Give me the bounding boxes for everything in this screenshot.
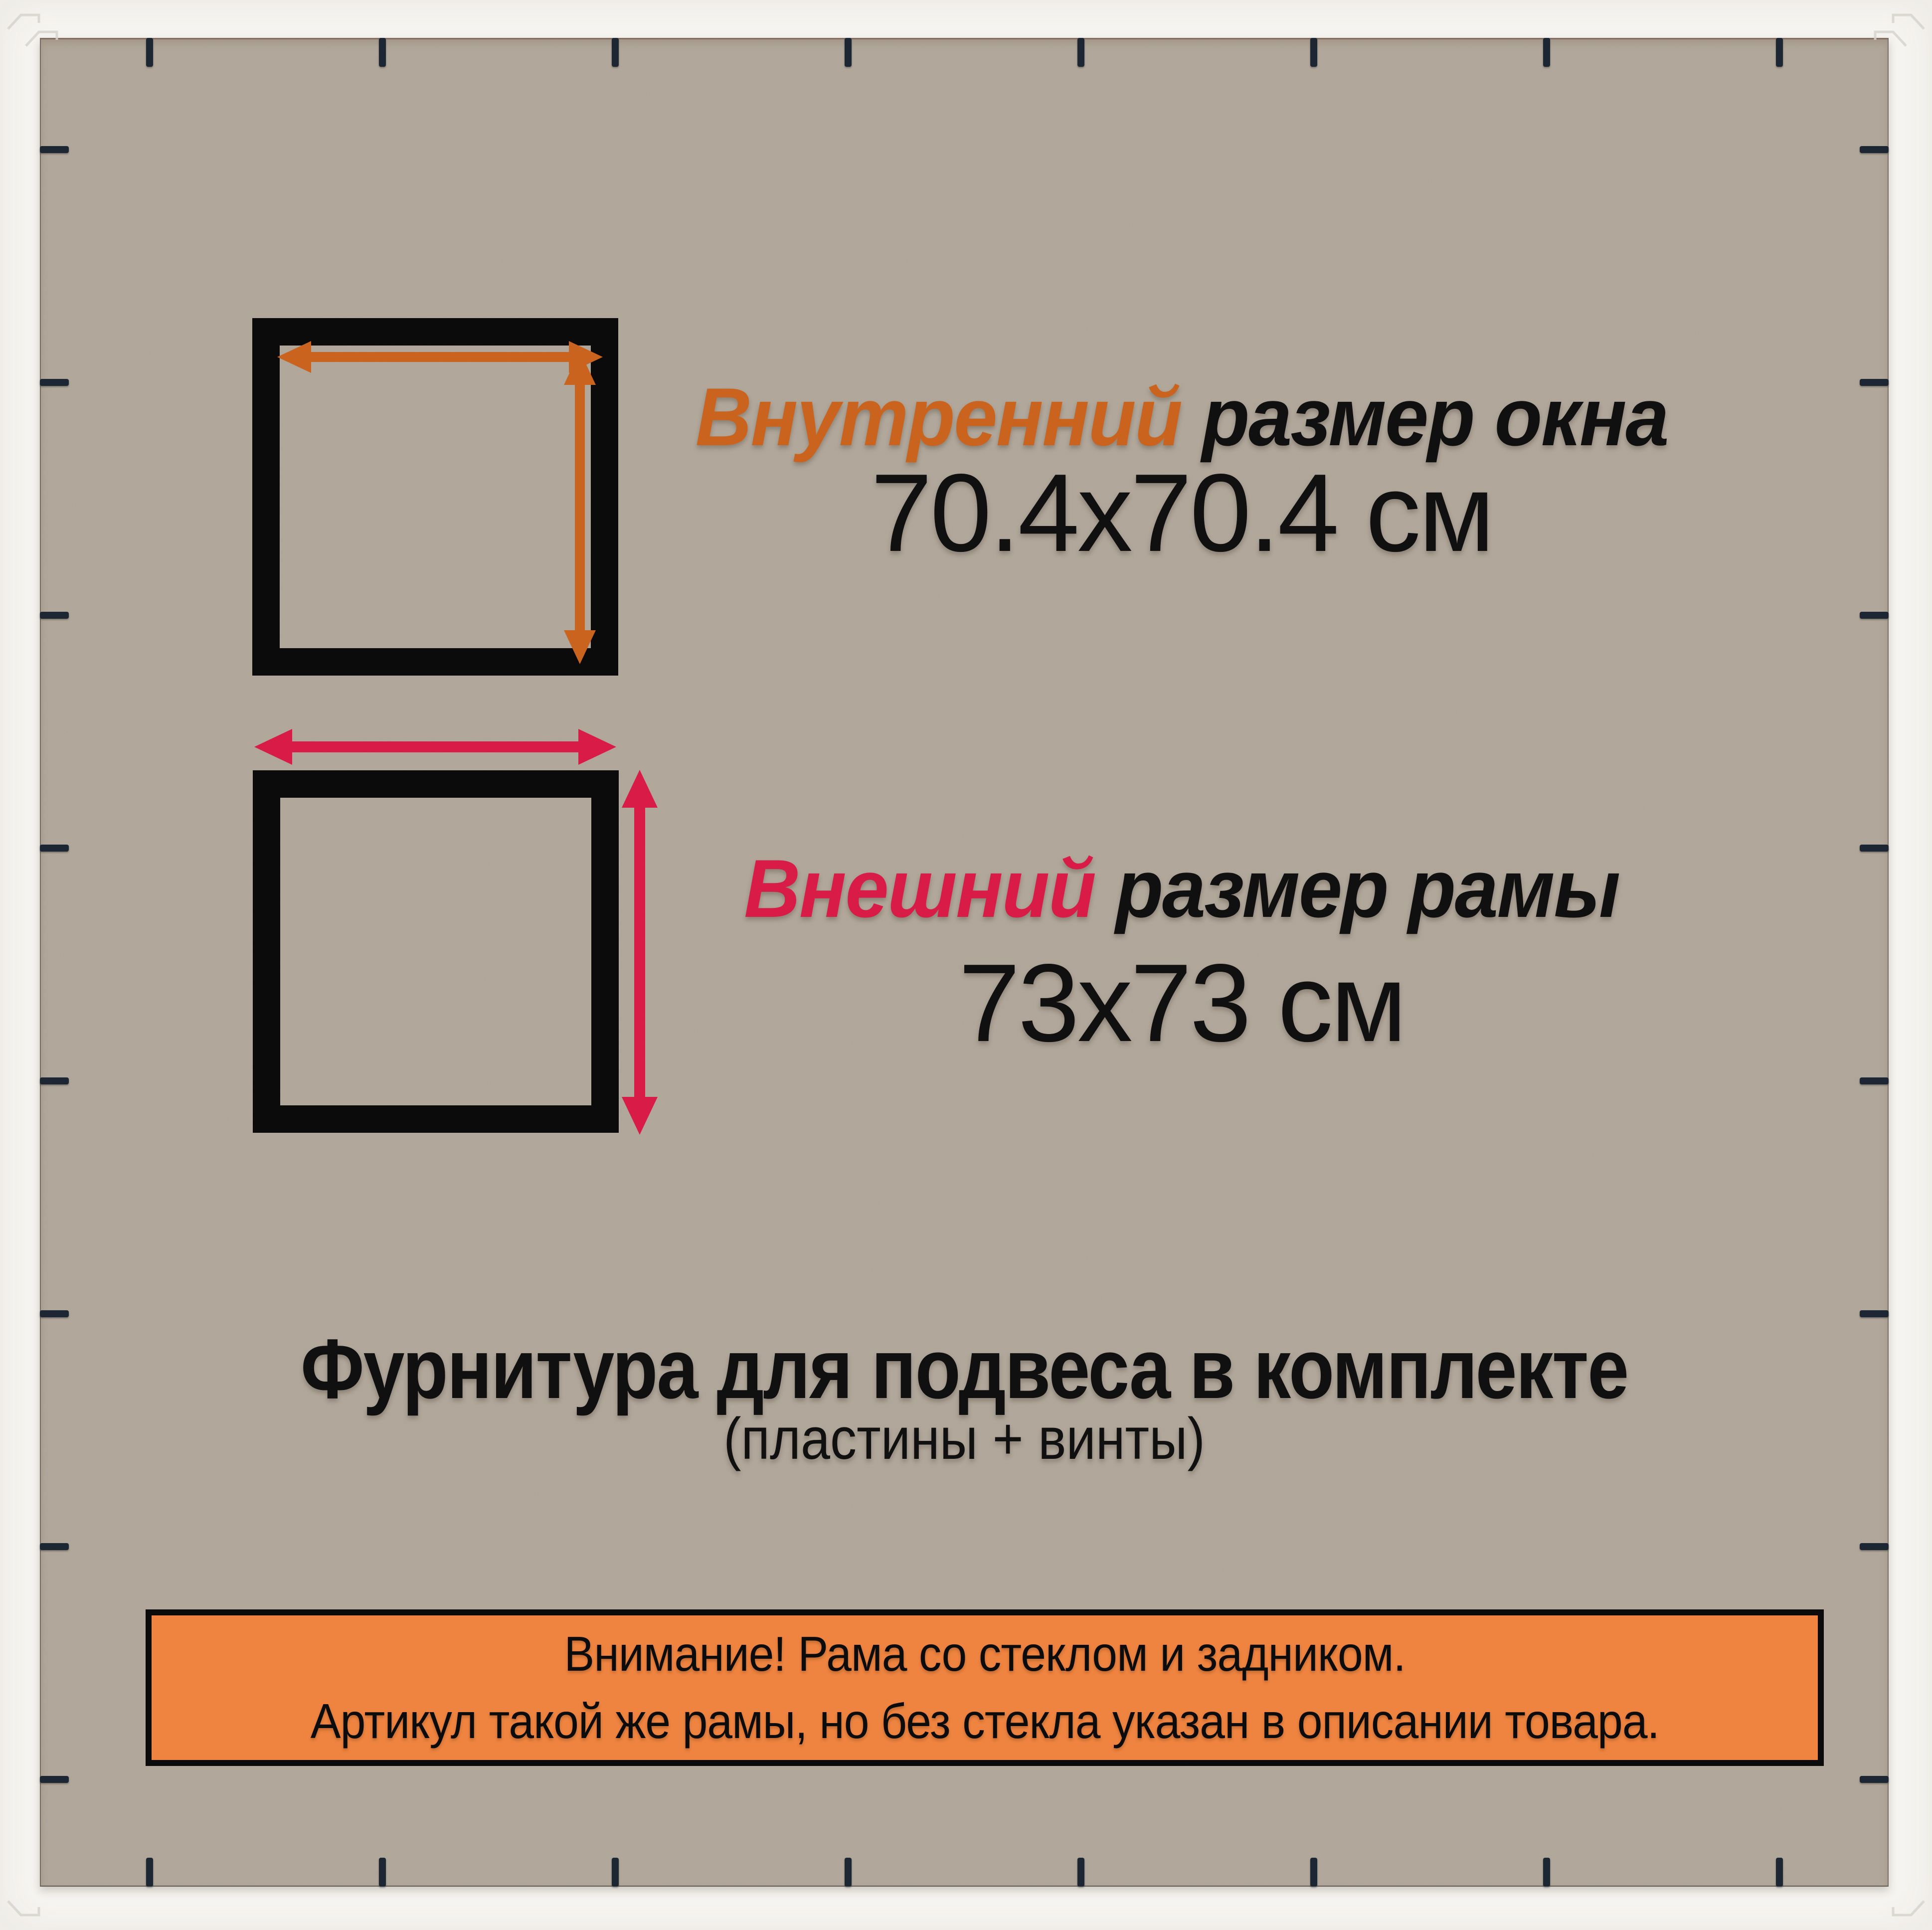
frame-clip-bottom xyxy=(845,1858,852,1887)
frame-clip-bottom xyxy=(1543,1858,1550,1887)
frame-clip-top xyxy=(1310,38,1317,67)
frame-clip-right xyxy=(1860,1776,1889,1783)
frame-clip-left xyxy=(40,612,69,619)
frame-clip-left xyxy=(40,1776,69,1783)
frame-clip-top xyxy=(845,38,852,67)
frame-clip-bottom xyxy=(1776,1858,1783,1887)
outer-size-label-rest: размер рамы xyxy=(1095,843,1619,934)
frame-clip-bottom xyxy=(1077,1858,1084,1887)
inner-size-value: 70.4x70.4 см xyxy=(603,450,1760,577)
notice-line1: Внимание! Рама со стеклом и задником. xyxy=(564,1626,1405,1682)
outer-size-label: Внешний размер рамы xyxy=(632,842,1731,936)
frame-clip-top xyxy=(1077,38,1084,67)
frame-clip-left xyxy=(40,146,69,153)
frame-clip-left xyxy=(40,1077,69,1084)
frame-clip-left xyxy=(40,845,69,852)
hardware-note-line1: Фурнитура для подвеса в комплекте xyxy=(151,1320,1777,1418)
frame-clip-top xyxy=(146,38,153,67)
frame-clip-left xyxy=(40,1543,69,1550)
frame-clip-bottom xyxy=(379,1858,386,1887)
inner-size-label-accent: Внутренний xyxy=(696,371,1182,463)
frame-clip-right xyxy=(1860,379,1889,386)
frame-clip-bottom xyxy=(1310,1858,1317,1887)
frame-back-photo: Внутренний размер окна 70.4x70.4 см Внеш… xyxy=(0,0,1932,1930)
outer-frame-square xyxy=(253,770,619,1133)
outer-size-value: 73x73 см xyxy=(603,940,1760,1067)
frame-clip-right xyxy=(1860,845,1889,852)
inner-size-label-rest: размер окна xyxy=(1182,371,1668,463)
frame-clip-top xyxy=(379,38,386,67)
frame-clip-right xyxy=(1860,146,1889,153)
frame-clip-right xyxy=(1860,612,1889,619)
frame-clip-top xyxy=(1776,38,1783,67)
frame-clip-top xyxy=(1543,38,1550,67)
inner-window-square xyxy=(252,318,618,676)
frame-clip-left xyxy=(40,379,69,386)
notice-line2: Артикул такой же рамы, но без стекла ука… xyxy=(310,1693,1659,1750)
frame-clip-right xyxy=(1860,1077,1889,1084)
frame-clip-bottom xyxy=(612,1858,619,1887)
frame-clip-left xyxy=(40,1310,69,1317)
frame-clip-bottom xyxy=(146,1858,153,1887)
frame-clip-right xyxy=(1860,1543,1889,1550)
notice-banner: Внимание! Рама со стеклом и задником. Ар… xyxy=(146,1609,1824,1766)
hardware-note-line2: (пластины + винты) xyxy=(132,1405,1796,1473)
frame-clip-top xyxy=(612,38,619,67)
outer-size-label-accent: Внешний xyxy=(744,843,1095,934)
frame-clip-right xyxy=(1860,1310,1889,1317)
